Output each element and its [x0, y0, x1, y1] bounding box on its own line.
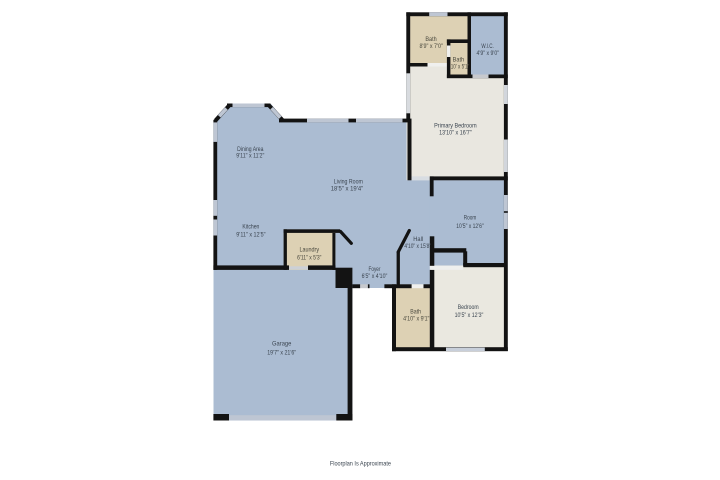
- svg-text:4'9" x 9'0": 4'9" x 9'0": [477, 51, 500, 57]
- svg-text:Foyer: Foyer: [369, 267, 381, 273]
- svg-text:Garage: Garage: [272, 342, 292, 348]
- svg-text:10' x 5'1": 10' x 5'1": [451, 64, 470, 70]
- svg-text:Bath: Bath: [425, 37, 436, 43]
- svg-text:4'10" x 9'1": 4'10" x 9'1": [403, 317, 429, 323]
- svg-text:Kitchen: Kitchen: [242, 224, 259, 230]
- svg-text:Laundry: Laundry: [300, 247, 320, 253]
- svg-text:10'5" x 12'3": 10'5" x 12'3": [455, 313, 484, 319]
- svg-text:9'11" x 12'5": 9'11" x 12'5": [236, 232, 265, 238]
- svg-text:Bath: Bath: [410, 309, 421, 315]
- svg-text:Bedroom: Bedroom: [458, 305, 479, 311]
- svg-text:Living Room: Living Room: [334, 180, 363, 186]
- svg-text:4'10" x 15'8": 4'10" x 15'8": [404, 244, 431, 250]
- svg-text:13'10" x 16'7": 13'10" x 16'7": [439, 130, 472, 136]
- svg-text:Bath: Bath: [453, 58, 465, 64]
- svg-text:Primary Bedroom: Primary Bedroom: [434, 123, 477, 129]
- svg-text:9'11" x 11'2": 9'11" x 11'2": [236, 153, 264, 159]
- svg-text:18'5" x 19'4": 18'5" x 19'4": [331, 187, 364, 193]
- svg-text:Dining Area: Dining Area: [237, 147, 264, 153]
- svg-text:Hall: Hall: [413, 237, 423, 243]
- svg-text:Floorplan Is Approximate: Floorplan Is Approximate: [330, 461, 391, 468]
- svg-text:8'9" x 7'0": 8'9" x 7'0": [419, 44, 443, 50]
- svg-text:Room: Room: [464, 216, 477, 222]
- svg-text:19'7" x 21'6": 19'7" x 21'6": [267, 351, 296, 357]
- svg-text:6'11" x 5'3": 6'11" x 5'3": [297, 255, 321, 261]
- svg-text:10'5" x 12'6": 10'5" x 12'6": [456, 224, 484, 230]
- svg-text:W.I.C.: W.I.C.: [481, 44, 494, 50]
- svg-text:6'5" x 4'10": 6'5" x 4'10": [362, 274, 388, 280]
